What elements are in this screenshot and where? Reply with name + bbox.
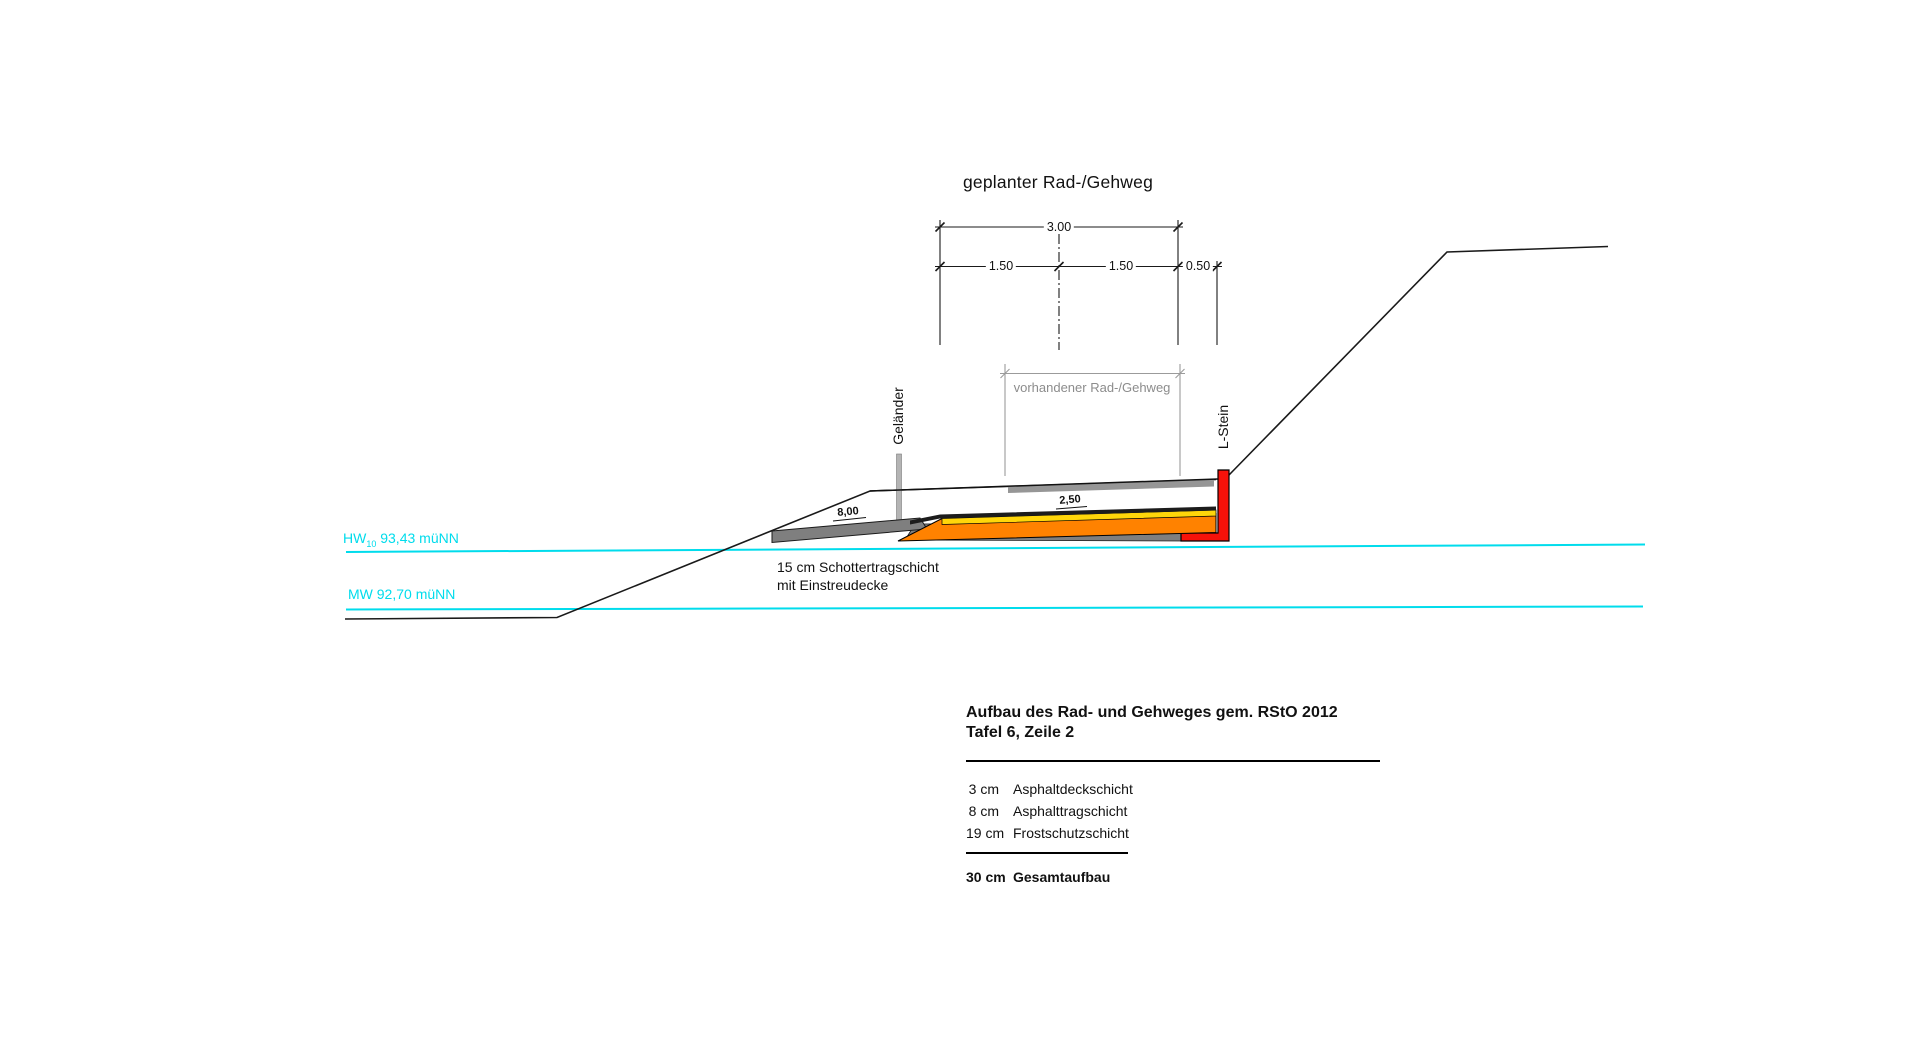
table-rule-subtotal <box>966 852 1128 854</box>
drawing-title: geplanter Rad-/Gehweg <box>963 172 1153 193</box>
total-label: Gesamtaufbau <box>1013 869 1110 885</box>
existing-path-label: vorhandener Rad-/Gehweg <box>1014 380 1171 395</box>
table-title-line-2: Tafel 6, Zeile 2 <box>966 723 1338 743</box>
table-title-line-1: Aufbau des Rad- und Gehweges gem. RStO 2… <box>966 703 1338 723</box>
existing-path-bar <box>1008 479 1214 493</box>
note-line-2: mit Einstreudecke <box>777 577 939 595</box>
railing-post <box>897 454 902 521</box>
hw-subscript: 10 <box>366 539 376 549</box>
dimension-ticks <box>936 223 1222 272</box>
terrain-line-right-slope <box>1229 247 1608 476</box>
table-row: 3 cmAsphaltdeckschicht <box>966 779 1133 801</box>
engineering-cross-section-drawing: geplanter Rad-/Gehweg 3.00 1.50 1.50 0.5… <box>0 0 1911 1063</box>
cross-section-linework <box>0 0 1911 1063</box>
mw-water-level-line <box>346 607 1643 610</box>
mw-water-level-label: MW 92,70 müNN <box>348 586 455 602</box>
hw-value: 93,43 müNN <box>376 530 458 546</box>
table-total-row: 30 cmGesamtaufbau <box>966 869 1110 885</box>
row-label: Frostschutzschicht <box>1013 825 1129 841</box>
gravel-layer-note: 15 cm Schottertragschicht mit Einstreude… <box>777 559 939 594</box>
dim-text-lane-right: 1.50 <box>1106 259 1136 273</box>
slope-value-left: 8,00 <box>837 505 859 519</box>
dim-text-overall: 3.00 <box>1044 220 1074 234</box>
total-quantity: 30 cm <box>966 869 999 885</box>
railing-label: Geländer <box>890 387 906 445</box>
hw-water-level-line <box>346 545 1645 553</box>
hw-prefix: HW <box>343 530 366 546</box>
slope-value-right: 2,50 <box>1059 493 1081 507</box>
slope-underline-right <box>1056 507 1087 510</box>
dim-text-lane-left: 1.50 <box>986 259 1016 273</box>
row-label: Asphaltdeckschicht <box>1013 781 1133 797</box>
buildup-table-rows: 3 cmAsphaltdeckschicht 8 cmAsphalttragsc… <box>966 779 1133 844</box>
row-quantity: 19 cm <box>966 823 999 845</box>
dim-text-edge-strip: 0.50 <box>1183 259 1213 273</box>
row-quantity: 8 cm <box>966 801 999 823</box>
row-quantity: 3 cm <box>966 779 999 801</box>
table-row: 8 cmAsphalttragschicht <box>966 801 1133 823</box>
buildup-table-title: Aufbau des Rad- und Gehweges gem. RStO 2… <box>966 703 1338 742</box>
l-stone-label: L-Stein <box>1215 405 1231 449</box>
dimension-lines <box>935 220 1222 350</box>
table-row: 19 cmFrostschutzschicht <box>966 823 1133 845</box>
hw-water-level-label: HW10 93,43 müNN <box>343 530 459 549</box>
table-rule-top <box>966 760 1380 762</box>
note-line-1: 15 cm Schottertragschicht <box>777 559 939 577</box>
row-label: Asphalttragschicht <box>1013 803 1127 819</box>
